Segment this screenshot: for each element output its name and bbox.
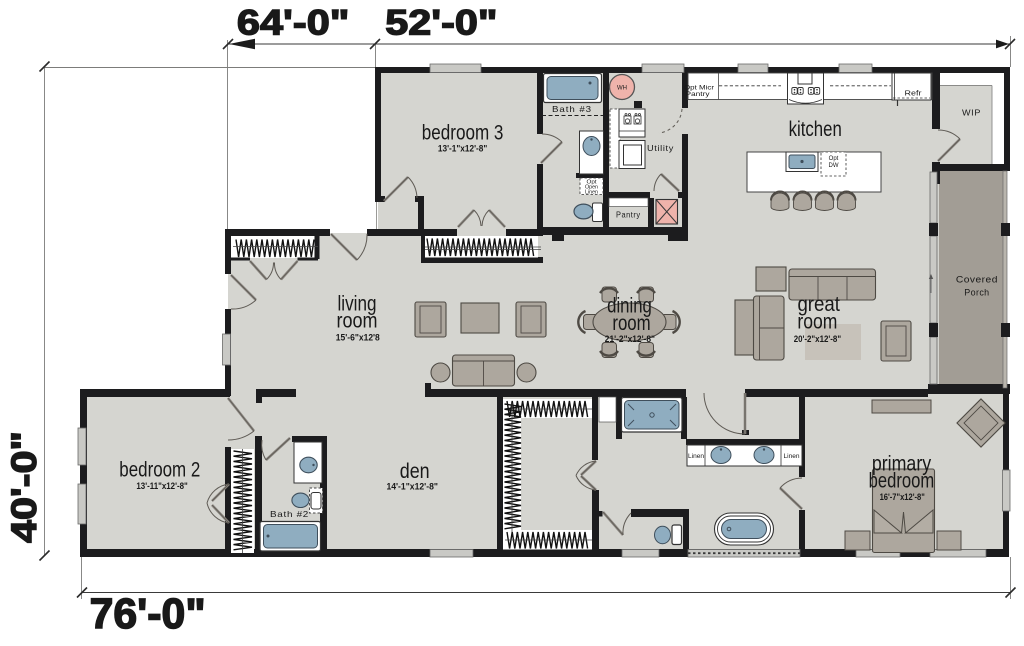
svg-text:Pantry: Pantry: [686, 91, 711, 98]
svg-text:Utility: Utility: [647, 143, 674, 153]
svg-text:Linen: Linen: [688, 453, 704, 460]
svg-text:40'-0": 40'-0": [4, 431, 44, 543]
svg-text:76'-0": 76'-0": [90, 591, 206, 638]
svg-text:14'-1"x12'-8": 14'-1"x12'-8": [386, 482, 438, 492]
svg-text:WH: WH: [617, 86, 627, 92]
svg-text:64'-0": 64'-0": [237, 3, 350, 43]
svg-text:Linen: Linen: [784, 453, 800, 460]
svg-text:Bath #2: Bath #2: [270, 509, 309, 519]
svg-text:room: room: [612, 311, 650, 335]
svg-text:13'-1"x12'-8": 13'-1"x12'-8": [438, 144, 487, 154]
svg-text:bedroom 2: bedroom 2: [119, 458, 200, 482]
svg-text:52'-0": 52'-0": [385, 3, 497, 43]
svg-text:WIP: WIP: [962, 108, 981, 118]
svg-text:Linen: Linen: [585, 190, 598, 196]
svg-text:bedroom: bedroom: [869, 469, 935, 493]
svg-text:Bath #3: Bath #3: [552, 104, 592, 114]
svg-text:room: room: [797, 310, 837, 334]
svg-text:room: room: [337, 308, 378, 332]
svg-text:Covered: Covered: [956, 275, 998, 285]
svg-text:bedroom 3: bedroom 3: [422, 121, 504, 145]
svg-text:Porch: Porch: [964, 287, 989, 297]
svg-text:20'-2"x12'-8": 20'-2"x12'-8": [794, 334, 841, 344]
svg-text:den: den: [400, 459, 430, 483]
svg-text:kitchen: kitchen: [789, 117, 842, 141]
svg-text:21'-2"x12'-8": 21'-2"x12'-8": [605, 334, 655, 344]
svg-text:13'-11"x12'-8": 13'-11"x12'-8": [136, 481, 187, 491]
svg-text:Refr: Refr: [905, 91, 923, 98]
svg-text:Pantry: Pantry: [616, 210, 641, 220]
svg-text:Opt: Opt: [829, 156, 839, 162]
svg-text:DW: DW: [829, 163, 839, 169]
svg-text:16'-7"x12'-8": 16'-7"x12'-8": [880, 492, 925, 502]
svg-text:15'-6"x12'8: 15'-6"x12'8: [336, 333, 380, 343]
